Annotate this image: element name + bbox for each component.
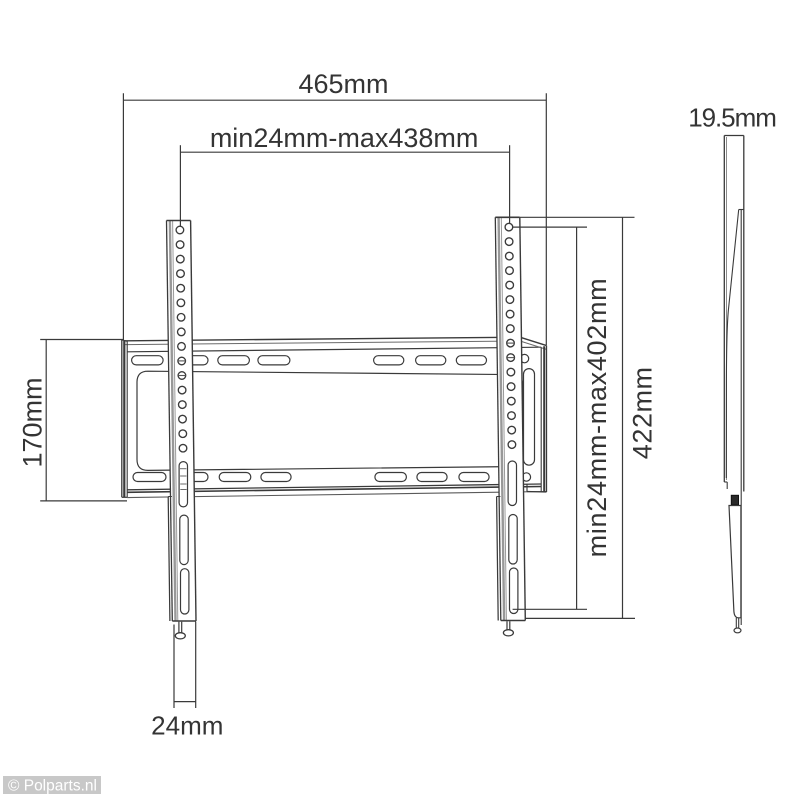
- svg-text:170mm: 170mm: [18, 377, 48, 467]
- svg-text:422mm: 422mm: [628, 366, 658, 459]
- svg-text:© Polparts.nl: © Polparts.nl: [8, 778, 97, 795]
- svg-text:24mm: 24mm: [151, 711, 223, 741]
- svg-text:19.5mm: 19.5mm: [688, 103, 776, 133]
- svg-text:465mm: 465mm: [298, 69, 388, 99]
- svg-text:min24mm-max402mm: min24mm-max402mm: [582, 278, 612, 558]
- svg-text:min24mm-max438mm: min24mm-max438mm: [210, 123, 479, 153]
